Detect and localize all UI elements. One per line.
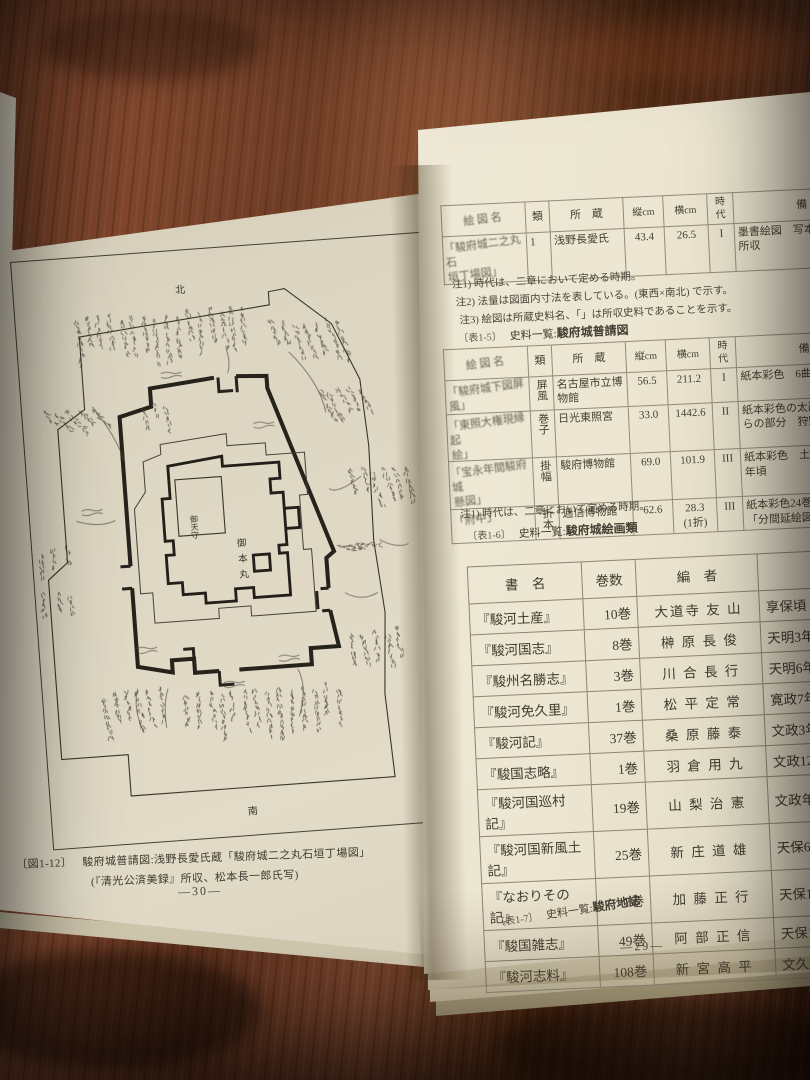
right-page-content: 絵 図 名類所 蔵縦cm横cm時代備 考「駿府城二之丸石垣丁場図」1浅野長愛氏4…	[424, 86, 810, 990]
table-cell: 1442.6	[668, 402, 714, 452]
column-header: 絵 図 名	[441, 202, 526, 237]
table-cell: 墨書絵図 写本 「清光公済美録」所収	[734, 216, 810, 272]
table-cell: 文政年度頃	[767, 769, 810, 824]
south-label: 南	[247, 804, 258, 818]
table-cell: 新 庄 道 雄	[647, 824, 771, 876]
table-cell: 日光東照宮	[554, 406, 630, 457]
column-header: 横cm	[665, 338, 710, 371]
table-cell: II	[712, 401, 740, 450]
table-cell: 『駿国志略』	[476, 754, 591, 790]
column-header: 絵 図 名	[443, 346, 528, 381]
wood-grain-patch	[40, 10, 260, 80]
table-cell: 『駿河免久里』	[473, 692, 588, 728]
table-cell: 25巻	[593, 829, 649, 878]
map-frame: 北 東 南 御天守 御本丸	[10, 232, 466, 851]
table-cell: 屏風	[529, 376, 554, 411]
table-cell: 101.9	[670, 450, 716, 500]
table-cell: 37巻	[588, 720, 643, 753]
column-header: 所 蔵	[551, 342, 626, 376]
caption-number: 〔表1-5〕	[458, 332, 502, 345]
column-header: 縦cm	[625, 340, 666, 373]
table-cell: 巻子	[530, 409, 556, 458]
table-cell: 紙本彩色 土佐光成筆 宝永年頃	[740, 441, 810, 497]
table-cell: 「駿府城下図屏風」	[445, 377, 530, 414]
gate-details	[107, 371, 335, 692]
column-header: 編 者	[635, 554, 759, 596]
tenshu-square	[175, 476, 225, 536]
column-header: 巻数	[581, 559, 637, 598]
table-cell: 紙本彩色 6曲半双小屏風	[737, 360, 810, 401]
column-header: 横cm	[663, 194, 708, 227]
column-header: 縦cm	[623, 196, 664, 229]
table-cell: 69.0	[630, 452, 672, 502]
table-notes: 注1) 時代は、二章において定める時期。注2) 法量は図面内寸法を表している。(…	[452, 264, 732, 331]
right-page-number: ―29―	[620, 938, 665, 955]
table-cell: 『駿州名勝志』	[472, 661, 587, 697]
table-cell: 1巻	[587, 689, 642, 722]
caption-number: 〔表1-6〕	[467, 530, 511, 543]
map-labels: 北 東 南 御天守 御本丸	[172, 267, 459, 821]
table-cell: 加 藤 正 行	[649, 871, 773, 923]
table-cell: 天保13年(1	[771, 863, 810, 918]
table-cell: 「宝永年間駿府城懸図」	[449, 458, 535, 510]
ninomaru-wall	[117, 370, 342, 677]
column-header: 時代	[707, 193, 734, 225]
table-cell: 山 梨 治 憲	[645, 777, 769, 829]
caption-title: 史料一覧:	[518, 526, 566, 540]
column-header: 書 名	[467, 562, 583, 604]
column-header: 類	[525, 201, 550, 233]
table-cell: 駿府博物館	[556, 454, 632, 505]
column-header: 時代	[709, 337, 736, 369]
honmaru-wall	[159, 451, 305, 606]
wood-grain-patch	[0, 950, 260, 1070]
table-cell: 19巻	[591, 782, 647, 831]
table-cell: 『駿河志料』	[485, 956, 600, 992]
table-cell: 掛幅	[532, 457, 558, 506]
table-cell: 211.2	[667, 369, 712, 405]
table-cell: 天保6年(1	[769, 816, 810, 871]
north-label: 北	[175, 284, 186, 297]
wood-grain-patch	[560, 20, 810, 80]
table-cell: 『駿河国巡村記』	[477, 785, 593, 837]
table-cell: 1巻	[590, 751, 645, 784]
table-cell: 「東照大権現縁起絵」	[446, 411, 532, 463]
table-cell: 108巻	[599, 954, 654, 987]
column-header: 所 蔵	[549, 198, 624, 232]
table-cell: 33.0	[628, 404, 670, 454]
table-cell: 56.5	[627, 371, 668, 406]
table-cell: 『駿河記』	[475, 723, 590, 759]
outer-boundary	[29, 283, 398, 801]
wood-grain-patch	[500, 1000, 810, 1080]
table-cell: 紙本彩色の太政大臣宣下からの部分 狩野探幽筆第2巻	[738, 393, 810, 449]
table-cell: 新 宮 高 平	[653, 948, 776, 985]
table-cell: 『駿河国新風土記』	[480, 832, 596, 884]
table-cell: 名古屋市立博物館	[553, 373, 628, 410]
table-cell: 28.3(1折)	[672, 498, 717, 534]
caption-title: 史料一覧:	[509, 328, 557, 342]
book-photo: 北 東 南 御天守 御本丸 〔図1-12〕駿府城普請図:浅野長愛氏蔵「駿府城二之…	[0, 0, 810, 1080]
column-header: 備 考	[735, 329, 810, 368]
caption-subject: 駿府城絵画類	[565, 521, 638, 538]
column-header: 備 考	[733, 185, 810, 224]
table-cell: III	[714, 449, 742, 498]
column-header: 編 年	[757, 546, 810, 591]
figure-caption-label: 〔図1-12〕	[16, 857, 72, 871]
tenshu-label: 御天守	[189, 514, 200, 541]
table-cell: I	[711, 368, 738, 403]
castle-map: 北 東 南 御天守 御本丸	[11, 233, 463, 847]
caption-subject: 駿府城普請図	[556, 323, 629, 340]
left-page-number: ―30―	[178, 883, 222, 900]
table-cell: III	[716, 497, 743, 532]
honmaru-label: 御本丸	[234, 537, 249, 585]
table-cell: 10巻	[583, 596, 638, 629]
column-header: 類	[527, 345, 552, 377]
table-cell: 3巻	[586, 658, 641, 691]
table-cell: 8巻	[584, 627, 639, 660]
